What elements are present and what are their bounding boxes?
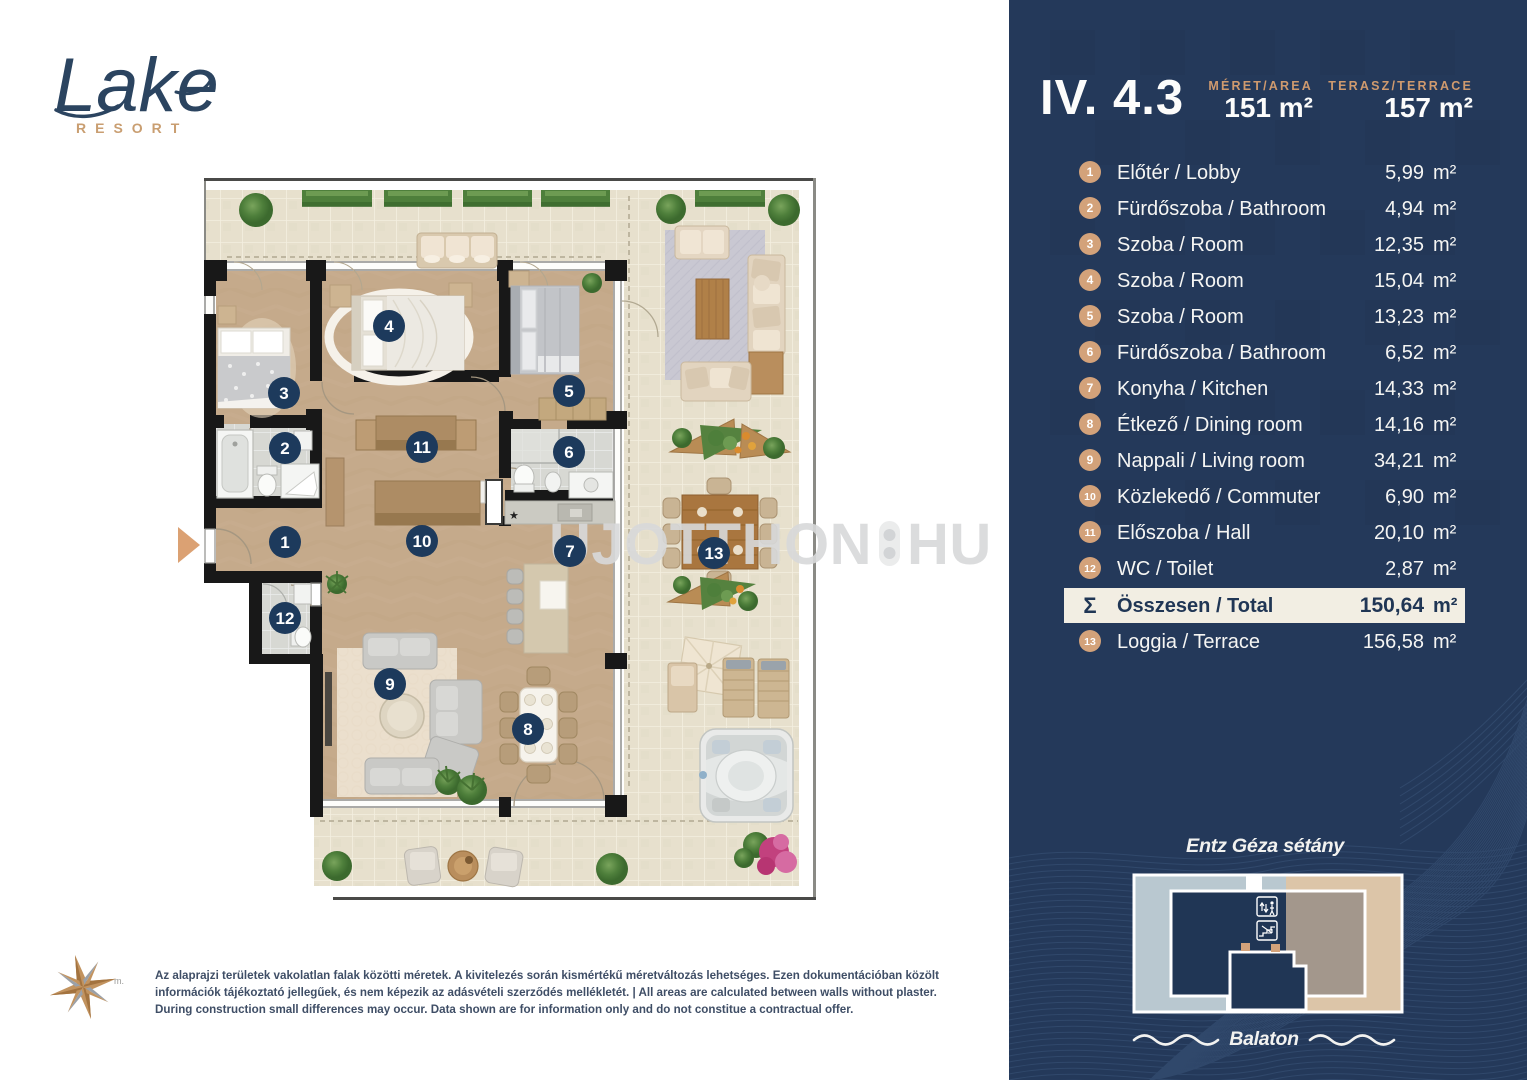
svg-text:7: 7 <box>565 542 574 561</box>
svg-text:10: 10 <box>1084 491 1096 503</box>
svg-text:RESORT: RESORT <box>76 120 188 136</box>
svg-text:WC / Toilet: WC / Toilet <box>1117 558 1214 580</box>
svg-text:m²: m² <box>1433 414 1457 436</box>
svg-text:8: 8 <box>1087 417 1094 431</box>
svg-text:m²: m² <box>1433 486 1457 508</box>
svg-text:14,16: 14,16 <box>1374 414 1424 436</box>
svg-text:151 m²: 151 m² <box>1224 92 1313 123</box>
svg-text:m²: m² <box>1433 162 1457 184</box>
svg-text:9: 9 <box>385 675 394 694</box>
svg-text:Σ: Σ <box>1083 593 1096 618</box>
svg-text:Fürdőszoba / Bathroom: Fürdőszoba / Bathroom <box>1117 342 1326 364</box>
svg-text:During construction small diff: During construction small differences ma… <box>155 1003 853 1016</box>
svg-text:13: 13 <box>705 544 724 563</box>
svg-text:MÉRET/AREA: MÉRET/AREA <box>1208 78 1313 93</box>
svg-text:13: 13 <box>1084 636 1096 648</box>
svg-text:150,64: 150,64 <box>1360 594 1425 617</box>
svg-text:3: 3 <box>1087 237 1094 251</box>
svg-text:m²: m² <box>1433 270 1457 292</box>
svg-text:15,04: 15,04 <box>1374 270 1424 292</box>
svg-text:6,52: 6,52 <box>1385 342 1424 364</box>
svg-text:11: 11 <box>413 438 431 457</box>
svg-text:2,87: 2,87 <box>1385 558 1424 580</box>
svg-text:12: 12 <box>1084 563 1096 575</box>
svg-text:Entz Géza sétány: Entz Géza sétány <box>1186 835 1345 857</box>
svg-text:5,99: 5,99 <box>1385 162 1424 184</box>
svg-text:HU: HU <box>907 512 992 577</box>
svg-text:12: 12 <box>276 609 295 628</box>
svg-text:12,35: 12,35 <box>1374 234 1424 256</box>
svg-text:IV. 4.3: IV. 4.3 <box>1040 71 1184 125</box>
svg-text:m²: m² <box>1433 198 1457 220</box>
svg-text:információk tájékoztató jelleg: információk tájékoztató jellegűek, és ne… <box>155 986 937 999</box>
svg-text:9: 9 <box>1087 453 1094 467</box>
svg-text:34,21: 34,21 <box>1374 450 1424 472</box>
svg-text:m²: m² <box>1433 595 1458 617</box>
svg-text:11: 11 <box>1084 527 1095 539</box>
svg-text:7: 7 <box>1087 381 1094 395</box>
svg-text:20,10: 20,10 <box>1374 522 1424 544</box>
svg-text:★: ★ <box>509 510 519 522</box>
svg-text:2: 2 <box>1087 201 1094 215</box>
svg-text:m²: m² <box>1433 522 1457 544</box>
svg-text:156,58: 156,58 <box>1363 631 1424 653</box>
svg-text:6: 6 <box>1087 345 1094 359</box>
svg-text:5: 5 <box>564 382 573 401</box>
svg-text:10: 10 <box>413 532 432 551</box>
svg-text:m²: m² <box>1433 378 1457 400</box>
svg-text:1: 1 <box>280 533 289 552</box>
svg-text:Nappali / Living room: Nappali / Living room <box>1117 450 1305 472</box>
svg-text:3: 3 <box>279 384 288 403</box>
svg-text:m²: m² <box>1433 342 1457 364</box>
svg-text:Az alaprajzi területek vakolat: Az alaprajzi területek vakolatlan falak … <box>155 969 939 982</box>
svg-text:8: 8 <box>523 720 532 739</box>
svg-text:4: 4 <box>1087 273 1094 287</box>
svg-text:Étkező / Dining room: Étkező / Dining room <box>1117 413 1303 436</box>
svg-text:157 m²: 157 m² <box>1384 92 1473 123</box>
svg-text:14,33: 14,33 <box>1374 378 1424 400</box>
svg-text:Közlekedő / Commuter: Közlekedő / Commuter <box>1117 486 1321 508</box>
svg-text:4,94: 4,94 <box>1385 198 1424 220</box>
svg-text:Balaton: Balaton <box>1229 1028 1299 1050</box>
svg-text:2: 2 <box>280 439 289 458</box>
svg-text:Előtér / Lobby: Előtér / Lobby <box>1117 162 1240 184</box>
svg-text:Fürdőszoba / Bathroom: Fürdőszoba / Bathroom <box>1117 198 1326 220</box>
svg-text:m²: m² <box>1433 234 1457 256</box>
svg-text:Előszoba / Hall: Előszoba / Hall <box>1117 522 1250 544</box>
svg-text:Loggia / Terrace: Loggia / Terrace <box>1117 631 1260 653</box>
svg-text:6: 6 <box>564 443 573 462</box>
svg-text:Szoba / Room: Szoba / Room <box>1117 270 1244 292</box>
svg-text:TERASZ/TERRACE: TERASZ/TERRACE <box>1328 79 1473 93</box>
svg-text:Szoba / Room: Szoba / Room <box>1117 234 1244 256</box>
svg-text:1: 1 <box>1087 165 1094 179</box>
svg-text:m²: m² <box>1433 306 1457 328</box>
svg-text:m²: m² <box>1433 558 1457 580</box>
svg-text:Szoba / Room: Szoba / Room <box>1117 306 1244 328</box>
svg-text:Konyha / Kitchen: Konyha / Kitchen <box>1117 378 1268 400</box>
svg-text:13,23: 13,23 <box>1374 306 1424 328</box>
svg-text:5: 5 <box>1087 309 1094 323</box>
svg-text:m²: m² <box>1433 631 1457 653</box>
svg-text:6,90: 6,90 <box>1385 486 1424 508</box>
svg-text:Összesen / Total: Összesen / Total <box>1117 594 1273 617</box>
svg-text:m.: m. <box>114 976 124 986</box>
svg-text:4: 4 <box>384 317 394 336</box>
svg-text:m²: m² <box>1433 450 1457 472</box>
